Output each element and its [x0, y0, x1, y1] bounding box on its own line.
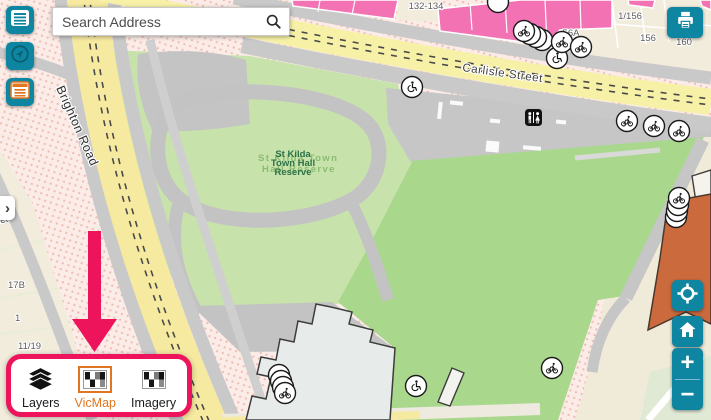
- zoom-control: + −: [672, 348, 703, 410]
- layer-list-button[interactable]: [6, 78, 34, 106]
- vicmap-checkerboard-icon: [78, 363, 112, 396]
- layer-list-icon: [10, 81, 30, 104]
- search-input[interactable]: [53, 14, 261, 30]
- zoom-out-button[interactable]: −: [672, 380, 703, 411]
- parcel-label: 132-134: [409, 1, 444, 12]
- basemap-panel: Layers VicMap: [6, 354, 192, 417]
- expand-panel-chevron[interactable]: ›: [0, 196, 15, 220]
- print-button[interactable]: [667, 7, 703, 38]
- parcel-label: 160: [676, 37, 692, 48]
- parcel-label: 1: [15, 313, 20, 324]
- basemap-label-imagery: Imagery: [131, 396, 176, 410]
- selected-frame: [78, 366, 112, 393]
- compass-icon: [9, 43, 31, 70]
- basemap-item-imagery[interactable]: Imagery: [131, 363, 176, 410]
- locate-button[interactable]: [672, 280, 703, 311]
- park-label-front: Reserve: [275, 167, 312, 178]
- basemap-label-vicmap: VicMap: [75, 396, 116, 410]
- chevron-right-icon: ›: [5, 200, 10, 217]
- layers-stack-icon: [27, 363, 54, 396]
- search-icon[interactable]: [261, 13, 285, 30]
- compass-button[interactable]: [6, 42, 34, 70]
- map-application: Carlisle Street Brighton Road Street St …: [0, 0, 711, 420]
- basemap-label-layers: Layers: [22, 396, 60, 410]
- toilets-icon: [525, 109, 542, 126]
- imagery-checkerboard-icon: [142, 363, 166, 396]
- basemap-item-layers[interactable]: Layers: [22, 363, 60, 410]
- parcel-label: 156: [640, 33, 656, 44]
- basemap-item-vicmap[interactable]: VicMap: [75, 363, 116, 410]
- parcel-label: 11/19: [18, 341, 41, 352]
- zoom-in-button[interactable]: +: [672, 348, 703, 379]
- crosshair-icon: [676, 282, 699, 310]
- home-button[interactable]: [672, 316, 703, 347]
- search-bar: [52, 7, 290, 36]
- legend-button[interactable]: [6, 6, 34, 34]
- printer-icon: [675, 11, 696, 35]
- legend-icon: [10, 9, 30, 32]
- home-icon: [677, 319, 698, 345]
- parcel-label: 17B: [8, 280, 25, 291]
- parcel-label: 1/156: [618, 11, 642, 22]
